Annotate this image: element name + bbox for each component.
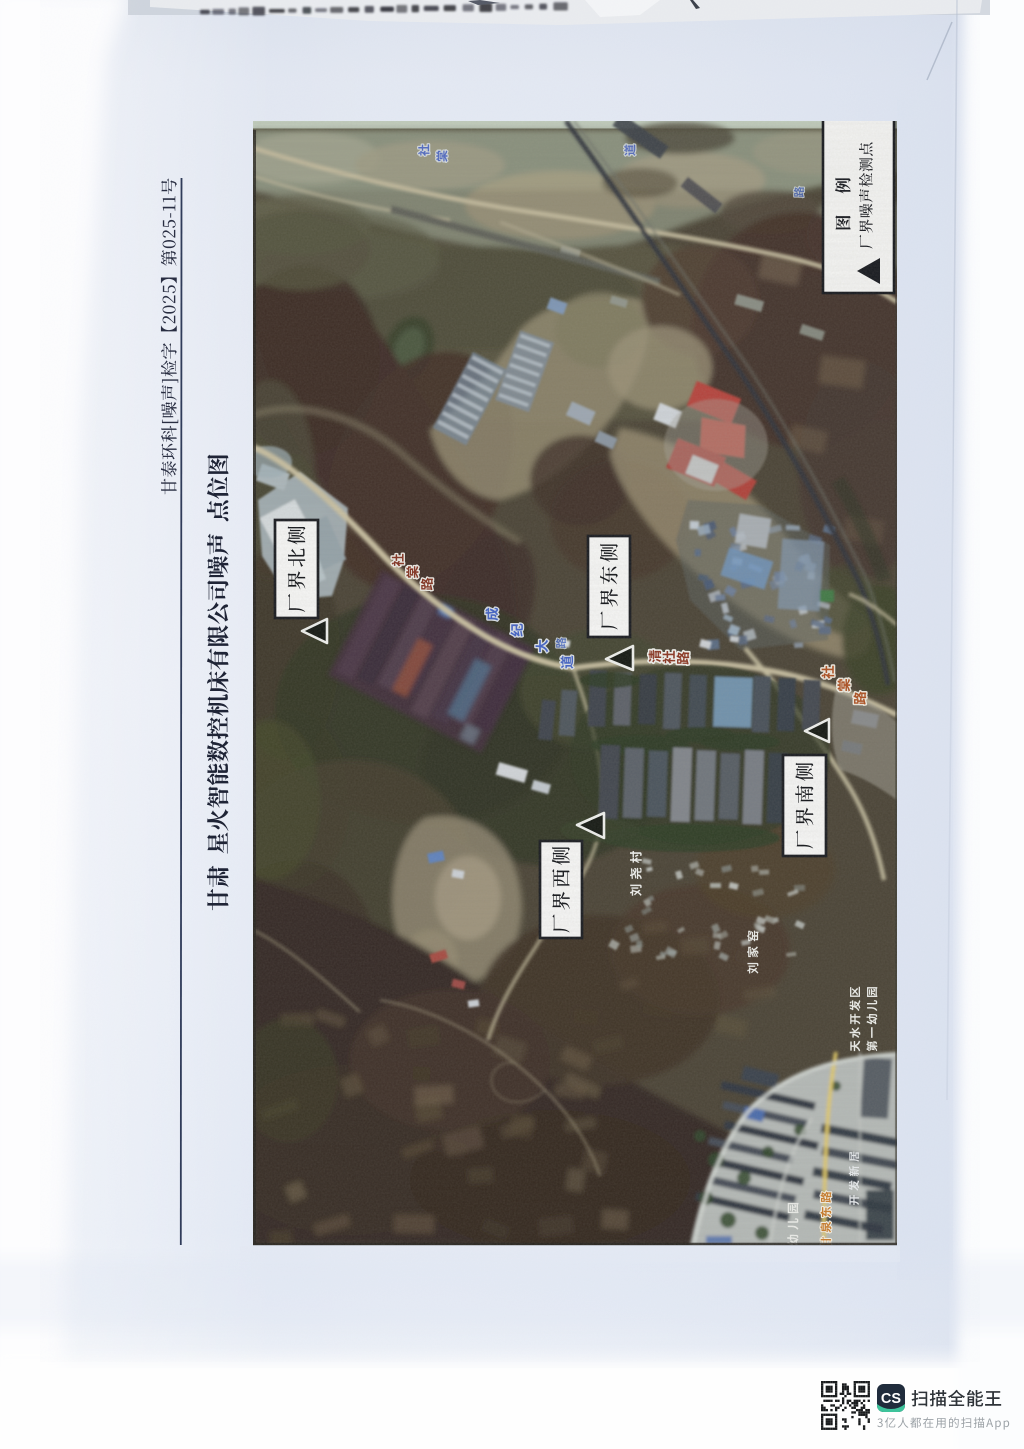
svg-text:CS: CS — [881, 1391, 901, 1407]
